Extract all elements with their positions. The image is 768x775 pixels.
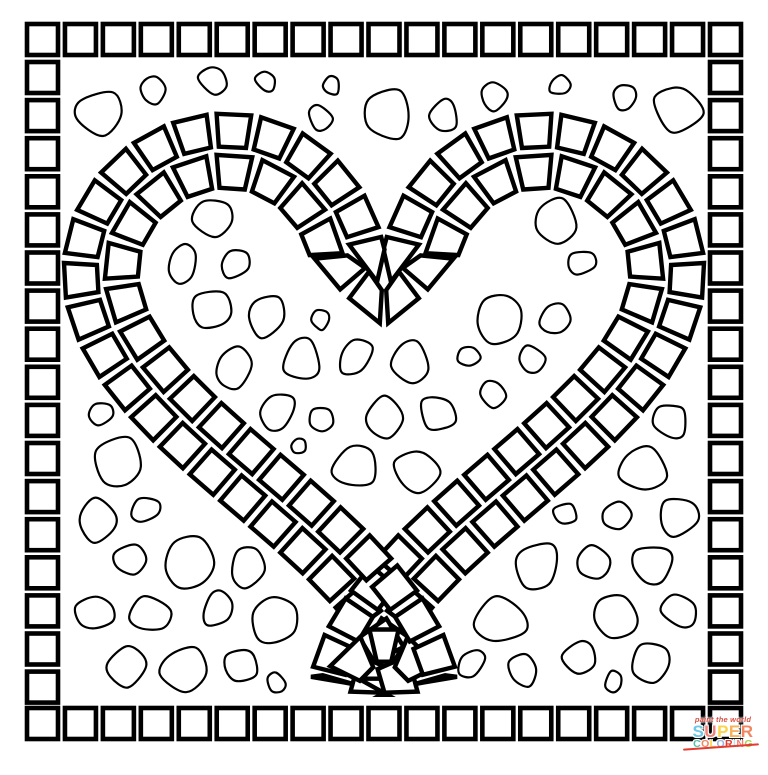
supercoloring-logo: paint the world SUPER COLORING: [679, 716, 767, 750]
coloring-page: paint the world SUPER COLORING: [0, 0, 768, 775]
logo-title-coloring-wrap: COLORING: [679, 739, 767, 750]
logo-title-super: SUPER: [679, 724, 767, 739]
mosaic-heart-artwork: [0, 0, 768, 775]
logo-letter: R: [725, 738, 733, 750]
